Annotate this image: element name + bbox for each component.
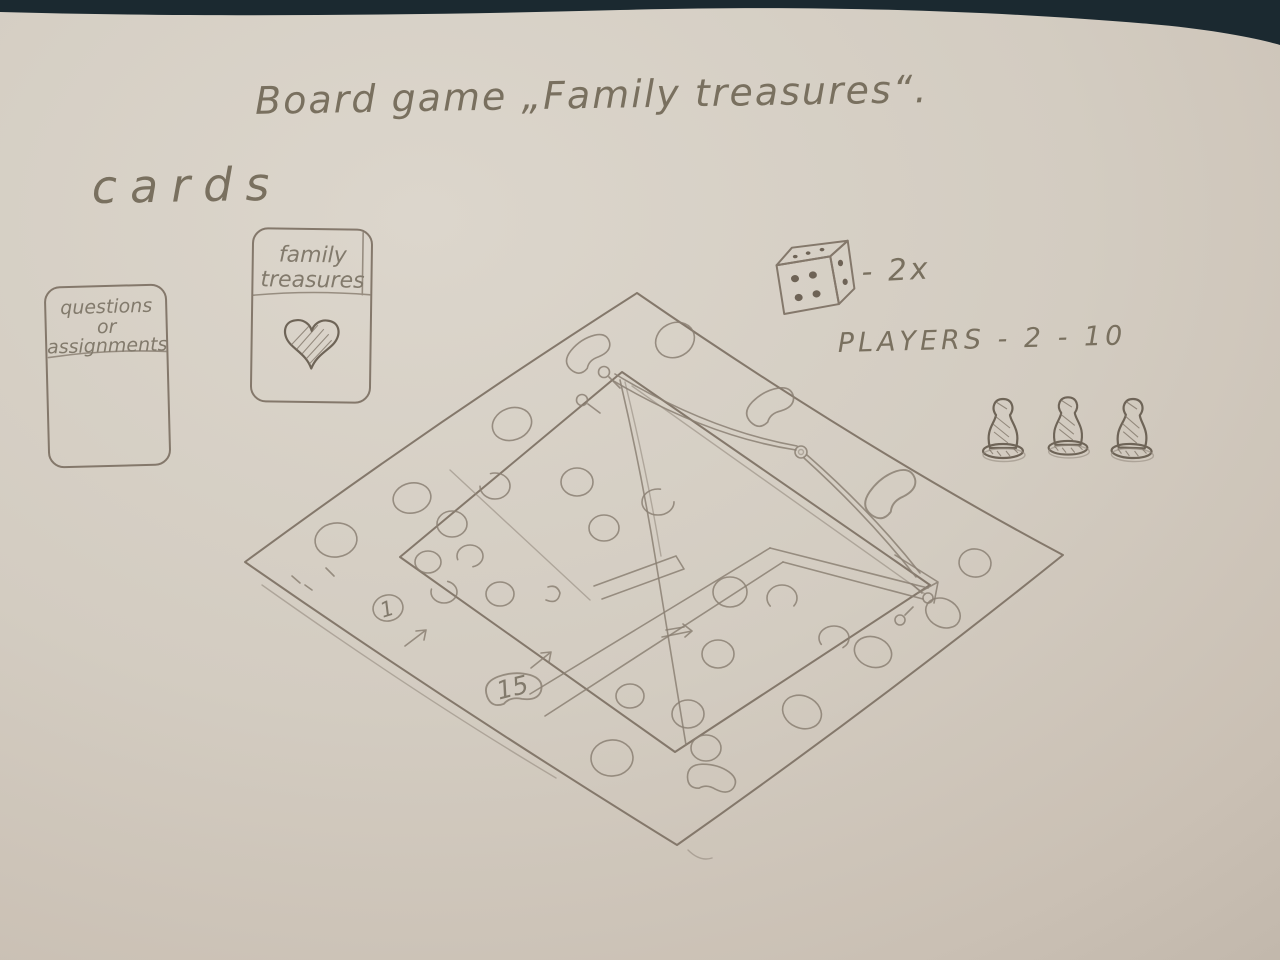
photo-of-sketch: Board game „Family treasures“. cards que… xyxy=(0,0,1280,960)
family-card-line2: treasures xyxy=(260,267,364,293)
cards-section-label: cards xyxy=(91,157,282,214)
paper-sheet xyxy=(0,8,1280,960)
dice-count-label: - 2x xyxy=(861,251,932,290)
family-card-line1: family xyxy=(279,243,348,269)
questions-card-line3: assignments xyxy=(47,333,168,358)
